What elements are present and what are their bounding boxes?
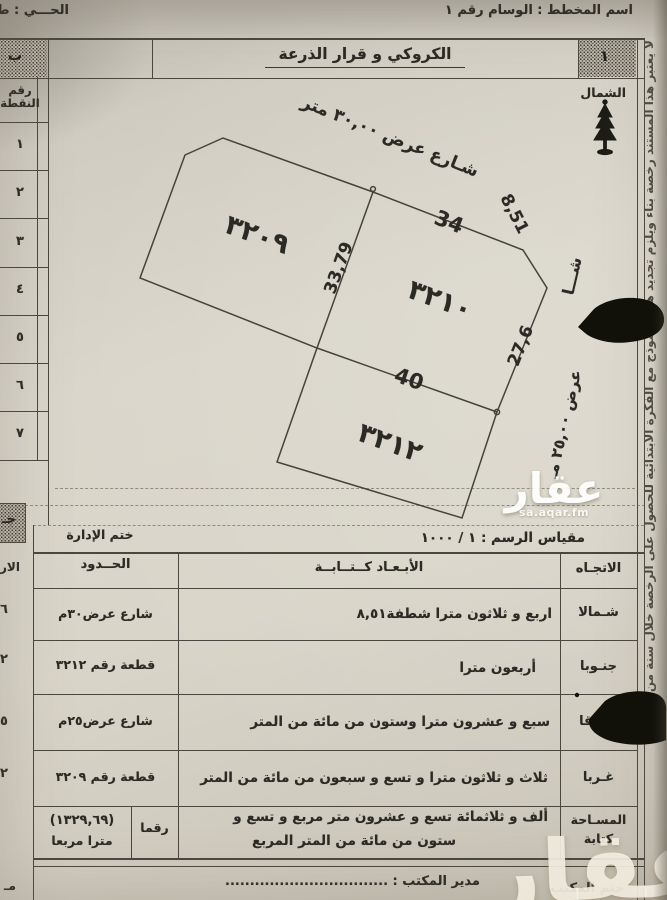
redaction-blob-street	[578, 298, 664, 343]
redaction-layer	[0, 0, 667, 900]
scan-shading-right-edge	[653, 0, 667, 900]
aqar-watermark-big: عقار	[420, 836, 667, 900]
redaction-dot	[575, 693, 579, 697]
aqar-watermark-logo: عقار sa.aqar.fm	[498, 466, 610, 519]
aqar-watermark-big-text: عقار	[485, 836, 667, 900]
scanned-survey-document: الحـــي : ط اسم المخطط : الوسام رقم ١ ب …	[0, 0, 667, 900]
